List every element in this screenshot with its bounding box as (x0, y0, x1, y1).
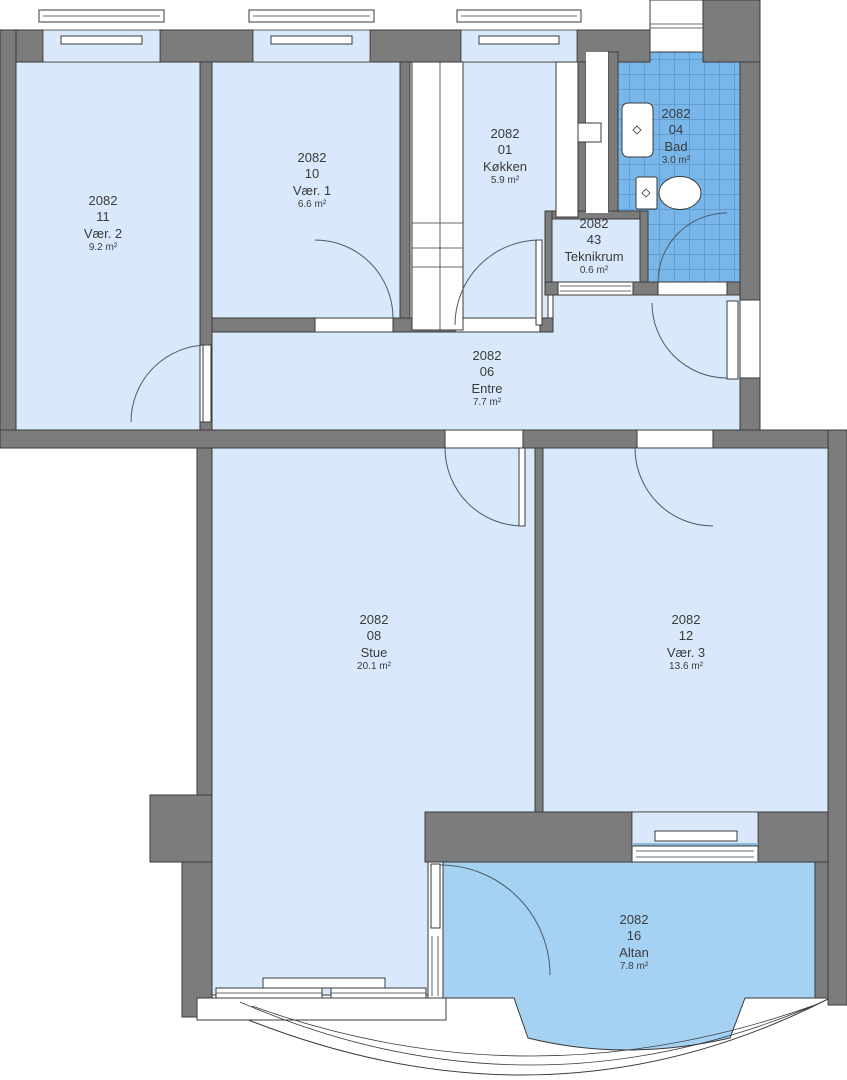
room-name: Teknikrum (564, 249, 623, 265)
wall-right-edge (828, 430, 847, 1005)
floor-plan: 2082 11 Vær. 2 9.2 m² 2082 10 Vær. 1 6.6… (0, 0, 847, 1080)
window-vaer3-altan (632, 846, 758, 862)
window-niche-koekken (461, 30, 577, 62)
room-id: 2082 (667, 612, 705, 628)
door-leaf-entrance (727, 301, 738, 379)
room-name: Stue (357, 645, 391, 661)
wall-mid-horizontal-1 (0, 430, 445, 448)
room-number: 16 (619, 928, 649, 944)
room-id: 2082 (293, 150, 331, 166)
door-gap-entrance (740, 300, 760, 378)
radiator-koekken (479, 36, 559, 44)
floor-plan-drawing (0, 0, 847, 1080)
teknik-door (558, 282, 633, 295)
room-id: 2082 (483, 126, 527, 142)
wall-above-altan-1 (425, 812, 632, 862)
room-label-altan: 2082 16 Altan 7.8 m² (619, 912, 649, 973)
wall-bad-left (608, 52, 618, 219)
room-label-bad: 2082 04 Bad 3.0 m² (662, 106, 691, 167)
door-gap-vaer3 (637, 430, 713, 448)
room-label-vaer1: 2082 10 Vær. 1 6.6 m² (293, 150, 331, 211)
kitchen-counter (412, 62, 463, 330)
wall-top-3 (370, 30, 461, 62)
altan-door-leaf (431, 864, 440, 928)
room-number: 12 (667, 628, 705, 644)
wall-right-upper-2 (740, 378, 760, 430)
wall-bad-bottom-1 (545, 282, 558, 295)
toilet-bowl (659, 177, 701, 210)
room-name: Vær. 2 (84, 226, 122, 242)
door-leaf-koekken (536, 240, 542, 325)
wall-stue-vaer3-divider (535, 448, 543, 812)
toilet-tank (636, 177, 657, 209)
room-number: 08 (357, 628, 391, 644)
wall-vaer2-divider (200, 62, 212, 345)
door-gap-stue (445, 430, 523, 448)
room-area: 20.1 m² (357, 661, 391, 674)
room-label-entre: 2082 06 Entre 7.7 m² (471, 348, 502, 409)
room-label-teknikrum: 2082 43 Teknikrum 0.6 m² (564, 216, 623, 277)
stue-window-sill (197, 998, 446, 1020)
window-bad (650, 0, 703, 52)
room-id: 2082 (619, 912, 649, 928)
room-label-koekken: 2082 01 Køkken 5.9 m² (483, 126, 527, 187)
room-name: Bad (662, 139, 691, 155)
wall-vaer2-divider-stub (200, 422, 212, 430)
room-id: 2082 (564, 216, 623, 232)
room-id: 2082 (357, 612, 391, 628)
radiator-vaer1 (271, 36, 352, 44)
room-label-vaer2: 2082 11 Vær. 2 9.2 m² (84, 193, 122, 254)
wall-mid-horizontal-2 (523, 430, 637, 448)
kitchen-tall-unit (556, 62, 578, 217)
wall-left (0, 30, 16, 445)
room-number: 11 (84, 209, 122, 225)
room-number: 01 (483, 142, 527, 158)
wall-stue-left-block (150, 795, 212, 862)
wall-right-upper (740, 62, 760, 300)
wall-top-right-block (703, 0, 760, 62)
room-area: 9.2 m² (84, 242, 122, 255)
sink (622, 103, 653, 157)
window-niche-vaer2 (43, 30, 160, 62)
room-id: 2082 (471, 348, 502, 364)
wall-stue-left-lower (182, 862, 212, 1017)
radiator-stue (263, 978, 385, 988)
room-area: 13.6 m² (667, 661, 705, 674)
room-number: 04 (662, 122, 691, 138)
door-gap-vaer1 (315, 318, 393, 332)
room-name: Køkken (483, 159, 527, 175)
room-area: 7.8 m² (619, 961, 649, 974)
room-area: 5.9 m² (483, 175, 527, 188)
wall-top-2 (160, 30, 253, 62)
door-leaf-vaer2 (203, 345, 211, 422)
room-name: Vær. 3 (667, 645, 705, 661)
room-area: 6.6 m² (293, 199, 331, 212)
room-label-vaer3: 2082 12 Vær. 3 13.6 m² (667, 612, 705, 673)
window-niche-vaer1 (253, 30, 370, 62)
door-leaf-stue (519, 448, 525, 526)
room-area: 0.6 m² (564, 265, 623, 278)
room-number: 10 (293, 166, 331, 182)
wall-bad-bottom-3 (727, 282, 740, 295)
room-name: Altan (619, 945, 649, 961)
room-name: Vær. 1 (293, 183, 331, 199)
room-label-stue: 2082 08 Stue 20.1 m² (357, 612, 391, 673)
room-id: 2082 (84, 193, 122, 209)
wall-entre-top-1 (212, 318, 315, 332)
room-id: 2082 (662, 106, 691, 122)
wall-altan-right (815, 862, 828, 998)
wall-above-altan-2 (758, 812, 828, 862)
radiator-vaer3 (655, 831, 737, 841)
room-area: 3.0 m² (662, 155, 691, 168)
room-area: 7.7 m² (471, 397, 502, 410)
radiator-vaer2 (61, 36, 142, 44)
wall-mid-horizontal-3 (713, 430, 847, 448)
wall-bad-bottom-2 (633, 282, 658, 295)
room-name: Entre (471, 381, 502, 397)
wall-vaer1-koekken (400, 62, 410, 318)
room-number: 06 (471, 364, 502, 380)
room-number: 43 (564, 232, 623, 248)
